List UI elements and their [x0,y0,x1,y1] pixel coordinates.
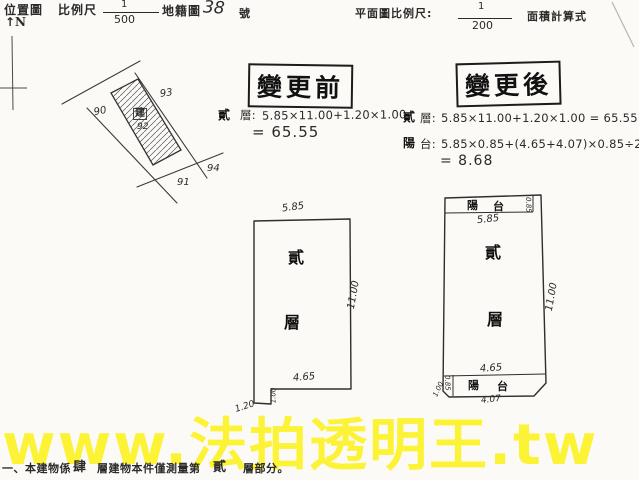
footer-note-middle: 層建物本件僅測量第 [97,463,201,474]
sheet-number: 38 [202,0,225,18]
footer-measured-floor: 貳 [213,461,226,474]
after-floor-formula: 5.85×11.00+1.20×1.00 = 65.55 [441,113,638,125]
scale-fraction-denominator: 500 [114,14,135,25]
after-floor-label: 層: [420,113,436,125]
plan-before-floor-char-1: 貳 [288,250,304,266]
building-mark: 建 [133,108,147,120]
after-balcony-prefix: 陽 [403,137,415,149]
after-change-stamp: 變更後 [455,61,561,108]
before-change-stamp: 變更前 [248,63,354,108]
compass-icon [0,36,27,110]
plan-before-floor-char-2: 層 [284,315,300,331]
parcel-label-93: 93 [159,88,173,100]
plan-after-bottom-balcony-char-1: 陽 [468,380,479,391]
plan-after-inner-bottom-width: 4.65 [480,363,503,375]
parcel-label-91: 91 [177,178,190,188]
after-balcony-formula: 5.85×0.85+(4.65+4.07)×0.85÷2 [441,139,639,151]
scan-edge-artifact [612,2,634,47]
before-floor-label: 層: [240,110,256,122]
compass-north-letter: N [15,16,26,28]
plan-scale-label: 平面圖比例尺: [355,8,432,19]
cadastral-sketch-drawing [62,61,223,203]
footer-note-suffix: 層部分。 [243,463,289,474]
sheet-number-suffix: 號 [239,8,251,19]
after-floor-prefix: 貳 [403,111,415,123]
plan-after-bottom-balcony-char-2: 台 [497,381,508,392]
footer-total-floors: 肆 [73,461,86,474]
scale-fraction-numerator: 1 [121,0,127,10]
scanned-survey-document: 位置圖 比例尺 1 500 地籍圖 38 號 ↑ N 平面圖比例尺: 1 200… [0,0,639,480]
after-balcony-result: = 8.68 [440,154,493,168]
area-formula-label: 面積計算式 [527,11,587,22]
footer-note-prefix: 一、本建物係 [2,463,71,474]
cadastral-map-label: 地籍圖 [162,5,201,17]
plan-after-floor-char-2: 層 [487,312,503,328]
after-balcony-label: 台: [420,139,436,151]
parcel-label-94: 94 [207,164,220,174]
compass-arrow-glyph: ↑ [5,16,15,28]
parcel-label-92: 92 [137,123,148,132]
scale-label: 比例尺 [58,4,97,16]
plan-after-top-balcony-end-width: 0.85 [524,197,532,213]
plan-before-bottom-width: 4.65 [293,372,316,384]
watermark-url-text: www.法拍透明王.tw [2,399,598,480]
plan-after-top-balcony-char-2: 台 [493,201,504,212]
before-floor-result: = 65.55 [252,125,319,140]
plan-scale-denominator: 200 [472,20,493,31]
before-floor-formula: 5.85×11.00+1.20×1.00 [262,109,407,122]
before-floor-prefix: 貳 [218,109,230,121]
plan-after-left-dim-short: 0.85 [443,375,451,391]
plan-scale-numerator: 1 [478,2,484,12]
plan-after-top-balcony-char-1: 陽 [467,200,478,211]
plan-after-floor-char-1: 貳 [485,245,501,261]
